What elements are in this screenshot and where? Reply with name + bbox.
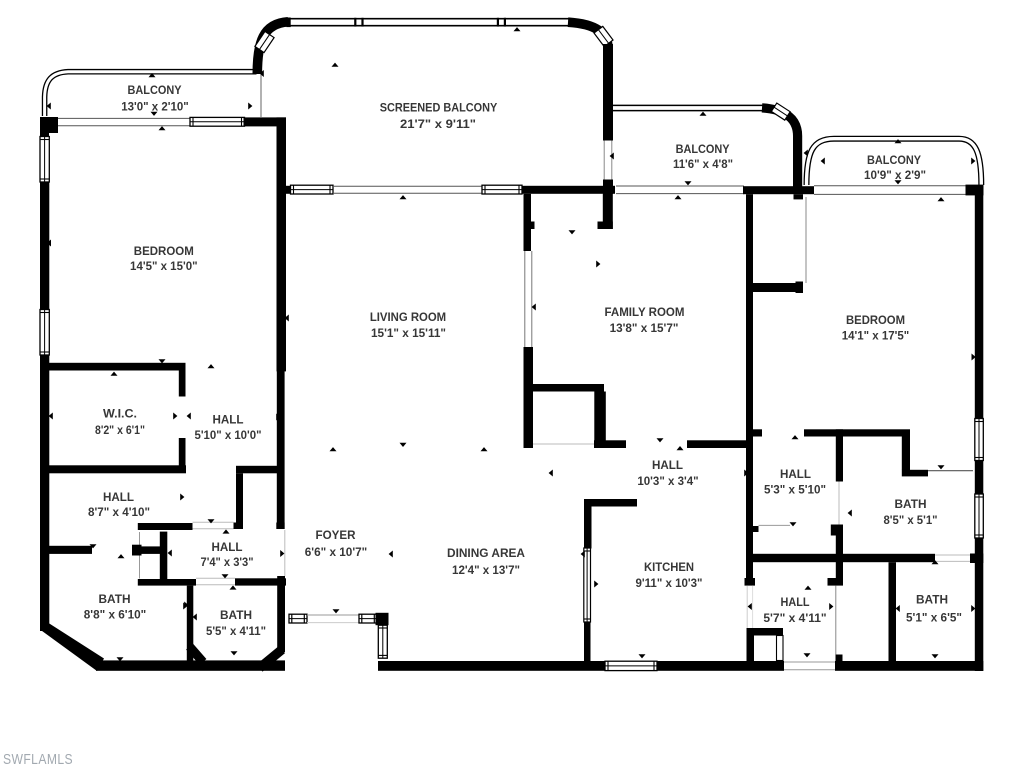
svg-text:BATH: BATH <box>895 497 927 511</box>
svg-text:SWFLAMLS: SWFLAMLS <box>3 751 73 768</box>
svg-text:KITCHEN: KITCHEN <box>644 560 694 574</box>
svg-text:BALCONY: BALCONY <box>128 83 182 97</box>
svg-text:BATH: BATH <box>99 592 131 606</box>
svg-text:14'5" x 15'0": 14'5" x 15'0" <box>130 259 198 273</box>
svg-text:6'6" x 10'7": 6'6" x 10'7" <box>305 545 368 559</box>
svg-text:HALL: HALL <box>781 595 810 609</box>
svg-text:10'9" x 2'9": 10'9" x 2'9" <box>864 168 926 182</box>
svg-text:BALCONY: BALCONY <box>867 153 921 167</box>
svg-text:11'6" x 4'8": 11'6" x 4'8" <box>673 157 733 171</box>
svg-text:BEDROOM: BEDROOM <box>134 244 194 258</box>
svg-text:BEDROOM: BEDROOM <box>846 313 905 327</box>
svg-text:9'11" x 10'3": 9'11" x 10'3" <box>636 576 703 590</box>
svg-text:8'5" x 5'1": 8'5" x 5'1" <box>884 513 938 527</box>
svg-text:SCREENED BALCONY: SCREENED BALCONY <box>380 101 498 115</box>
svg-text:HALL: HALL <box>652 458 684 472</box>
svg-text:HALL: HALL <box>103 490 135 504</box>
svg-text:FAMILY ROOM: FAMILY ROOM <box>605 305 685 319</box>
svg-text:5'5" x 4'11": 5'5" x 4'11" <box>206 624 266 638</box>
svg-text:HALL: HALL <box>213 412 245 426</box>
svg-text:21'7" x 9'11": 21'7" x 9'11" <box>400 117 476 131</box>
svg-text:HALL: HALL <box>780 467 812 481</box>
svg-text:13'0" x 2'10": 13'0" x 2'10" <box>121 99 189 113</box>
svg-text:5'1" x 6'5": 5'1" x 6'5" <box>906 610 962 624</box>
svg-text:FOYER: FOYER <box>316 528 356 542</box>
svg-text:LIVING ROOM: LIVING ROOM <box>370 310 446 324</box>
svg-text:8'7" x 4'10": 8'7" x 4'10" <box>88 505 150 519</box>
svg-text:5'7" x 4'11": 5'7" x 4'11" <box>763 611 826 625</box>
svg-text:BATH: BATH <box>220 608 252 622</box>
svg-text:12'4" x 13'7": 12'4" x 13'7" <box>452 563 520 577</box>
svg-text:BALCONY: BALCONY <box>676 142 730 156</box>
svg-text:8'8" x 6'10": 8'8" x 6'10" <box>84 607 147 621</box>
svg-text:14'1" x 17'5": 14'1" x 17'5" <box>842 329 910 343</box>
svg-text:BATH: BATH <box>916 592 948 606</box>
svg-text:15'1" x 15'11": 15'1" x 15'11" <box>371 326 446 340</box>
svg-text:13'8" x 15'7": 13'8" x 15'7" <box>610 321 679 335</box>
svg-text:10'3" x 3'4": 10'3" x 3'4" <box>637 474 698 488</box>
svg-text:7'4" x 3'3": 7'4" x 3'3" <box>201 555 254 569</box>
svg-text:DINING AREA: DINING AREA <box>447 546 525 560</box>
svg-text:W.I.C.: W.I.C. <box>103 407 137 421</box>
svg-text:8'2" x 6'1": 8'2" x 6'1" <box>95 423 145 437</box>
svg-text:5'3" x 5'10": 5'3" x 5'10" <box>764 482 826 496</box>
svg-text:HALL: HALL <box>212 540 244 554</box>
svg-text:5'10" x 10'0": 5'10" x 10'0" <box>195 428 262 442</box>
